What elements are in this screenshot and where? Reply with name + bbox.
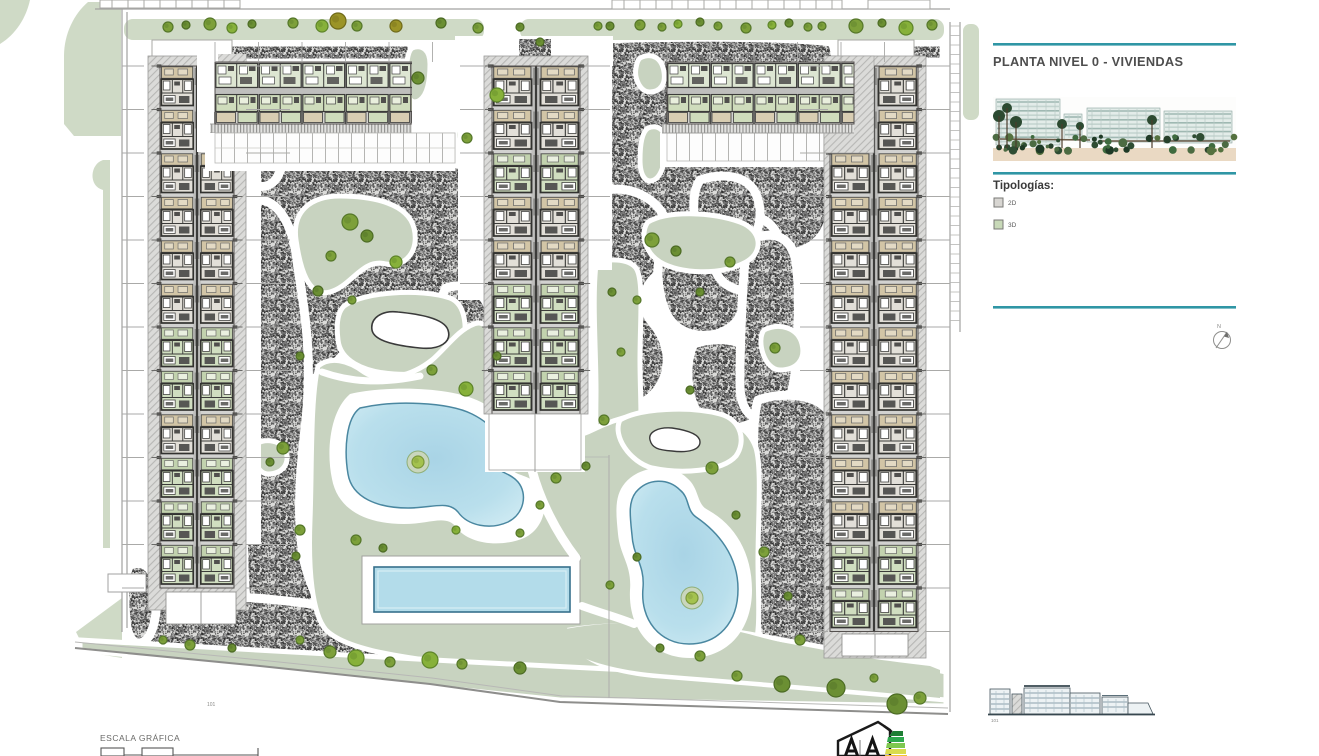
svg-text:PLANTA NIVEL 0 - VIVIENDAS: PLANTA NIVEL 0 - VIVIENDAS (993, 54, 1183, 69)
svg-text:N: N (1217, 324, 1221, 330)
svg-text:3D: 3D (1008, 222, 1017, 229)
svg-text:2D: 2D (1008, 200, 1017, 207)
svg-text:ESCALA GRÁFICA: ESCALA GRÁFICA (100, 733, 180, 743)
svg-text:Tipologías:: Tipologías: (993, 180, 1054, 192)
svg-text:101: 101 (991, 718, 999, 723)
svg-text:101: 101 (207, 702, 216, 708)
